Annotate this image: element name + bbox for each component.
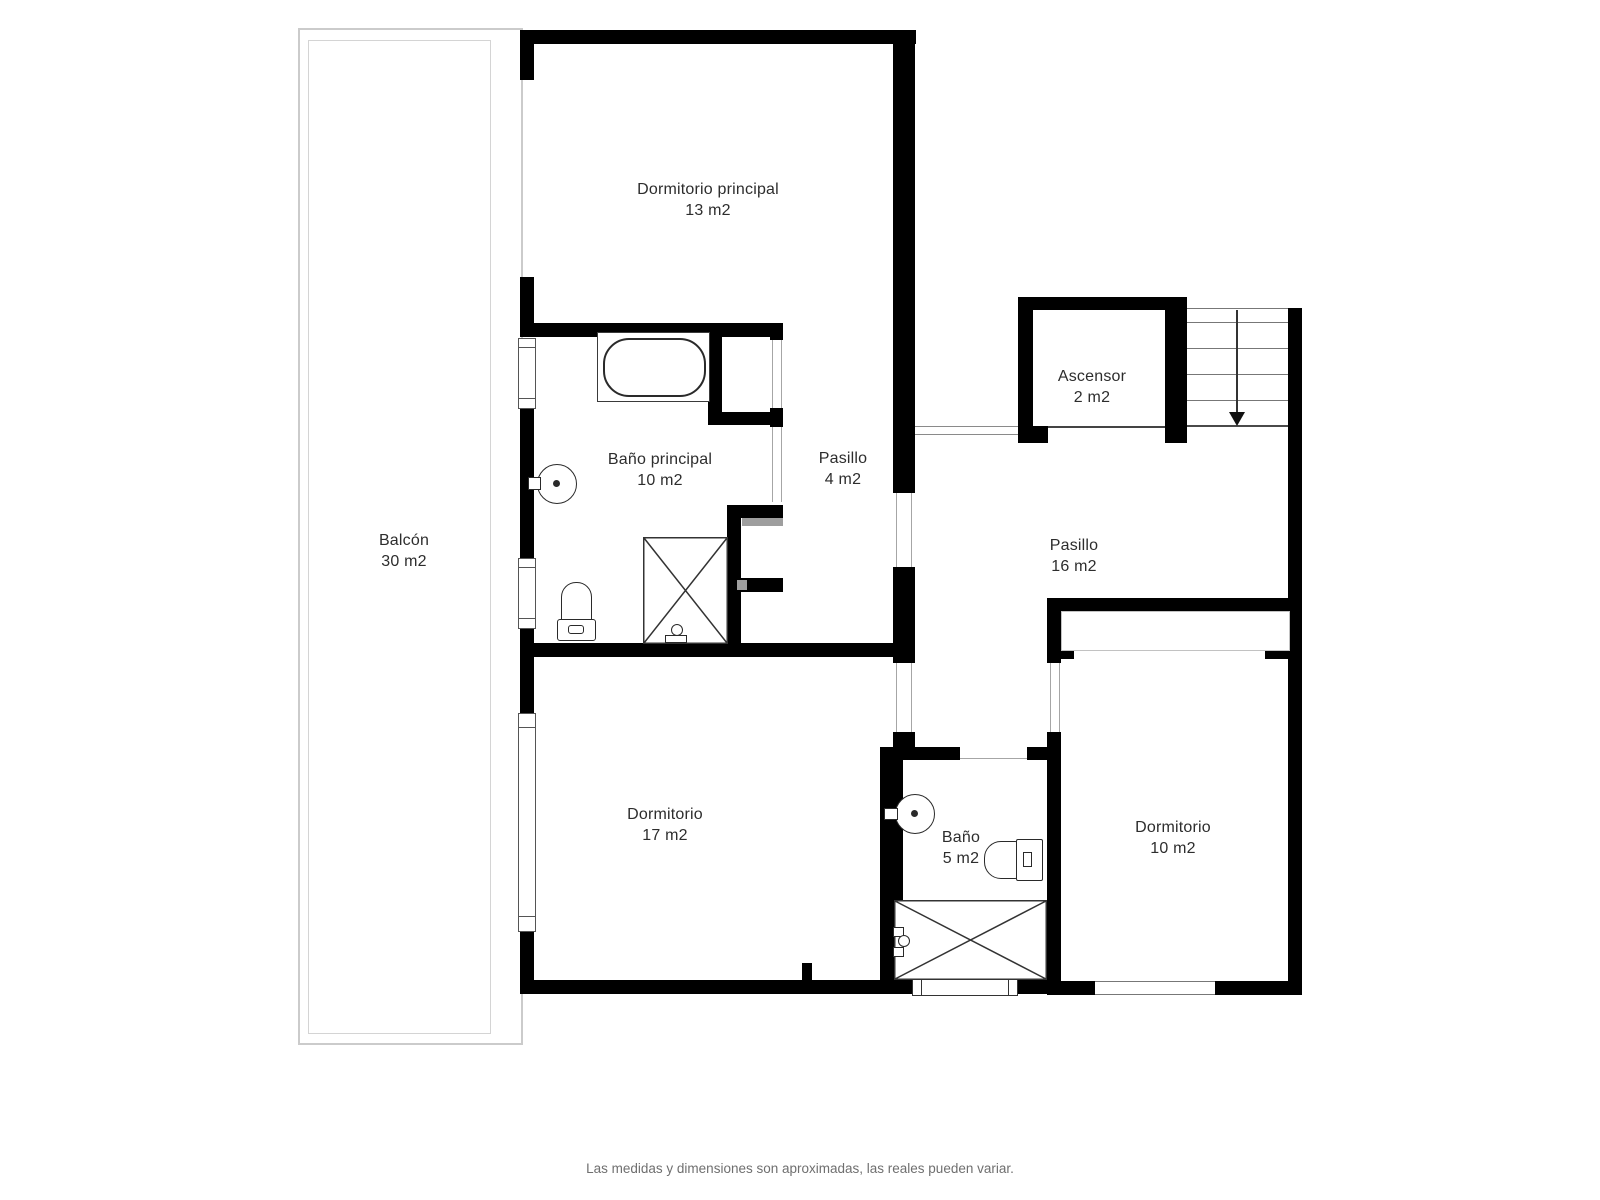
window — [518, 713, 536, 932]
wall — [1047, 732, 1061, 995]
sink-drain — [553, 480, 560, 487]
floor-plan: Dormitorio principal 13 m2 Baño principa… — [0, 0, 1600, 1200]
room-area: 16 m2 — [1050, 556, 1099, 577]
room-area: 13 m2 — [637, 200, 779, 221]
room-label-dormitorio-10: Dormitorio 10 m2 — [1135, 817, 1211, 859]
door-opening — [1050, 663, 1051, 732]
door-opening — [1059, 663, 1060, 732]
stairs-center-line — [1236, 310, 1238, 412]
room-name: Baño principal — [608, 449, 712, 470]
wall — [520, 30, 916, 44]
toilet-button — [568, 625, 584, 634]
wall-accent — [737, 580, 747, 590]
wall — [520, 627, 534, 713]
toilet-button — [1023, 852, 1032, 867]
wall — [1047, 598, 1302, 611]
disclaimer-text: Las medidas y dimensiones son aproximada… — [586, 1161, 1014, 1176]
room-area: 4 m2 — [819, 469, 868, 490]
room-name: Dormitorio principal — [637, 179, 779, 200]
wall — [880, 980, 912, 994]
wall — [893, 30, 915, 493]
door-opening — [781, 427, 782, 502]
door-opening — [772, 340, 773, 408]
room-area: 30 m2 — [379, 551, 429, 572]
bathtub — [603, 338, 706, 397]
room-name: Dormitorio — [1135, 817, 1211, 838]
room-name: Baño — [942, 827, 980, 848]
door-opening — [772, 427, 773, 502]
sink-faucet — [528, 477, 541, 490]
shower — [894, 900, 1047, 980]
room-label-banyo-principal: Baño principal 10 m2 — [608, 449, 712, 491]
door-opening — [911, 493, 912, 567]
wall — [520, 30, 534, 80]
wall-accent — [742, 518, 783, 526]
window — [518, 338, 536, 409]
room-name: Dormitorio — [627, 804, 703, 825]
wall — [1018, 297, 1033, 443]
room-area: 2 m2 — [1058, 387, 1126, 408]
door-opening — [911, 663, 912, 732]
room-area: 10 m2 — [608, 470, 712, 491]
room-label-banyo-5: Baño 5 m2 — [942, 827, 980, 869]
door-sill — [912, 979, 1018, 996]
wall — [1047, 981, 1095, 995]
room-label-balcon: Balcón 30 m2 — [379, 530, 429, 572]
wall — [770, 323, 783, 340]
room-label-pasillo-16: Pasillo 16 m2 — [1050, 535, 1099, 577]
shower-faucet-icon — [893, 947, 904, 957]
wall — [520, 643, 915, 657]
toilet-bowl — [984, 841, 1020, 879]
wall — [708, 337, 722, 412]
wall — [1033, 426, 1048, 443]
room-name: Pasillo — [1050, 535, 1099, 556]
door-opening — [781, 340, 782, 408]
wall — [520, 980, 880, 994]
stairs-down-arrow-icon — [1229, 412, 1245, 426]
elevator-door-line — [1048, 426, 1165, 428]
wall — [727, 505, 741, 643]
shower — [643, 537, 728, 644]
stairs — [1187, 308, 1288, 427]
wall — [903, 747, 960, 760]
room-area: 10 m2 — [1135, 838, 1211, 859]
room-area: 17 m2 — [627, 825, 703, 846]
window — [518, 558, 536, 629]
wall — [1018, 297, 1187, 310]
toilet-bowl — [561, 582, 592, 624]
room-area: 5 m2 — [942, 848, 980, 869]
shower-faucet-icon — [898, 935, 910, 947]
threshold-line — [915, 434, 1018, 435]
door-opening — [896, 663, 897, 732]
window — [1095, 981, 1215, 995]
threshold-line — [915, 426, 1018, 427]
door-opening — [960, 758, 1027, 759]
room-name: Ascensor — [1058, 366, 1126, 387]
wall — [1165, 297, 1187, 443]
room-label-dormitorio-principal: Dormitorio principal 13 m2 — [637, 179, 779, 221]
shower-faucet-icon — [665, 635, 687, 643]
door-opening — [896, 493, 897, 567]
wall — [1027, 747, 1048, 760]
room-name: Balcón — [379, 530, 429, 551]
room-label-dormitorio-17: Dormitorio 17 m2 — [627, 804, 703, 846]
room-name: Pasillo — [819, 448, 868, 469]
sink-drain — [911, 810, 918, 817]
room-label-ascensor: Ascensor 2 m2 — [1058, 366, 1126, 408]
sink-faucet — [884, 808, 898, 820]
wardrobe — [1061, 611, 1290, 651]
wall — [1288, 308, 1302, 995]
room-label-pasillo-4: Pasillo 4 m2 — [819, 448, 868, 490]
wall — [741, 578, 783, 592]
wall — [770, 408, 783, 427]
wall — [802, 963, 812, 980]
